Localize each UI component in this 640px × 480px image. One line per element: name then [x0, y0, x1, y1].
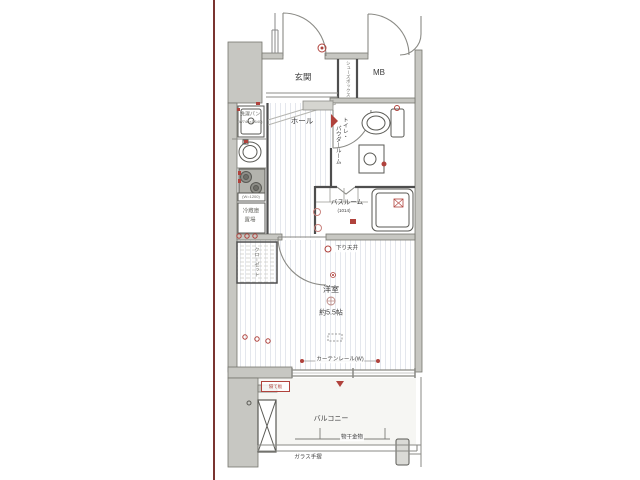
- note-partition: 隔て板: [261, 381, 290, 392]
- floor-plan-page: 玄関 MB シューズボックス ホール 洗濯パン (W740×D640) (W=1…: [0, 0, 640, 480]
- fixture-label-kitchen-counter: (W=1200): [242, 195, 260, 199]
- room-label-balcony: バルコニー: [314, 416, 349, 423]
- fixture-label-fridge-line2: 置場: [244, 218, 255, 224]
- fixture-label-fridge-line1: 冷蔵庫: [243, 209, 260, 215]
- note-curtain-rail: カーテンレール(W): [315, 357, 364, 363]
- room-label-bathroom: バスルーム: [331, 200, 363, 207]
- note-partition-text: 隔て板: [269, 384, 283, 390]
- pipe-lines: [272, 13, 278, 53]
- fixture-label-laundry-pan: 洗濯パン: [240, 113, 260, 118]
- floor-plan-drawing: [0, 0, 640, 480]
- note-glass-handrail: ガラス手摺: [294, 455, 321, 461]
- room-label-closet: クローゼット: [254, 247, 259, 277]
- room-label-genkan: 玄関: [294, 73, 311, 82]
- note-lowered-ceiling: 下り天井: [335, 246, 359, 252]
- room-label-western-room: 洋室: [323, 286, 339, 294]
- room-label-meter-box: MB: [373, 69, 385, 77]
- room-label-western-room-size: 約5.5帖: [319, 310, 343, 317]
- room-label-toilet: トイレ・: [341, 117, 347, 139]
- room-label-bathroom-size: (1014): [337, 209, 350, 214]
- room-label-powder-room: パウダールーム: [334, 126, 340, 165]
- note-drying-hardware: 物干金物: [340, 435, 364, 441]
- room-label-hall: ホール: [291, 117, 314, 125]
- room-label-shoes-box: シューズボックス: [346, 61, 351, 97]
- fixture-label-laundry-pan-size: (W740×D640): [237, 120, 262, 124]
